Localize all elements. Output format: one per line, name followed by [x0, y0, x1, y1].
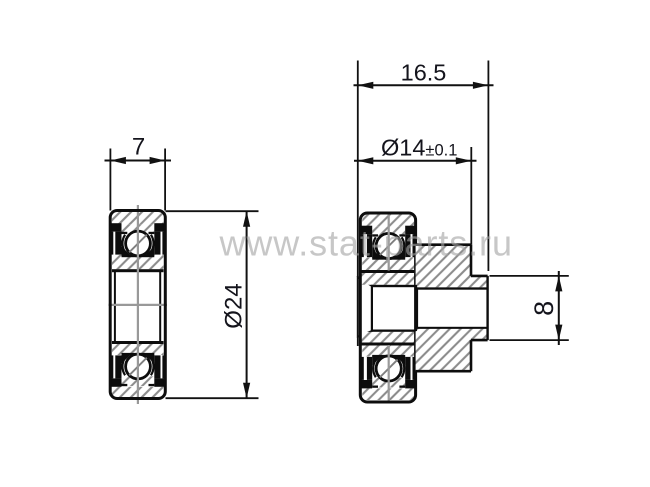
svg-text:7: 7 — [132, 134, 145, 161]
svg-text:8: 8 — [529, 301, 559, 316]
svg-text:16.5: 16.5 — [401, 60, 447, 86]
svg-text:Ø24: Ø24 — [221, 283, 248, 328]
svg-text:www.stat-parts.ru: www.stat-parts.ru — [219, 223, 513, 264]
